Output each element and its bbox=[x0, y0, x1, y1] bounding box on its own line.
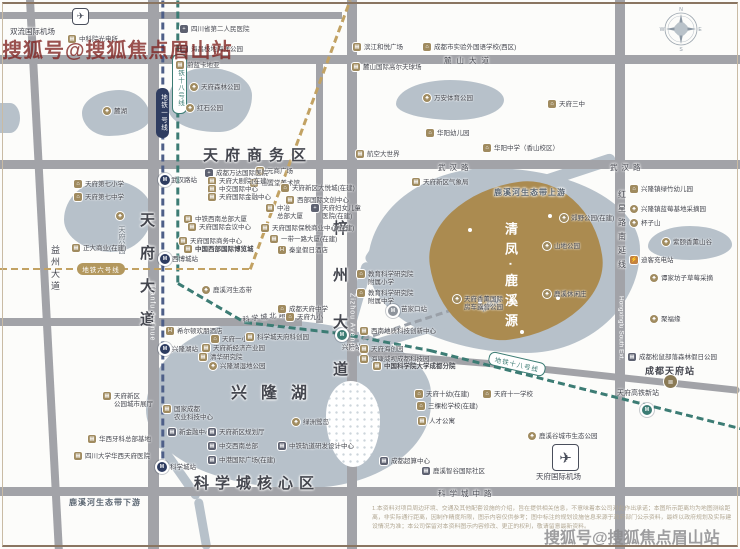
poi-bld: ▦正大商业(在建) bbox=[72, 245, 126, 253]
poi-bld: ▦中国西部国际博览城 bbox=[184, 246, 254, 254]
bld-icon: ▦ bbox=[202, 344, 210, 352]
poi-tree: ♣鹿溪谷城市生态公园 bbox=[528, 433, 598, 441]
school-icon: ⌂ bbox=[483, 390, 491, 398]
poi-hosp: +四川省第二人民医院 bbox=[180, 26, 250, 34]
property-dot bbox=[548, 214, 552, 218]
poi-label: 天府国际保税商业中心(在建) bbox=[272, 225, 354, 233]
district-title: 科学城核心区 bbox=[194, 472, 320, 493]
metro-station-icon: M bbox=[155, 460, 169, 474]
poi-label: 正大商业(在建) bbox=[83, 245, 126, 253]
bld-icon: ▦ bbox=[208, 193, 216, 201]
bld-icon: ▦ bbox=[360, 345, 368, 353]
map-label: 武汉路 bbox=[610, 162, 645, 173]
school-icon: ⌂ bbox=[426, 129, 434, 137]
map-label: 麓山大道 bbox=[444, 55, 494, 66]
school-icon: ⌂ bbox=[278, 305, 286, 313]
road bbox=[0, 487, 740, 496]
poi-label: 秦皇假日酒店 bbox=[289, 247, 328, 255]
watermark-bottom: 搜狐号@搜狐焦点眉山站 bbox=[544, 524, 720, 548]
poi-label: 紫颐香薰山谷 bbox=[673, 239, 712, 247]
school-icon: ⌂ bbox=[211, 335, 219, 343]
poi-label: 中国科学院大学成都分院 bbox=[384, 363, 456, 371]
poi-bld: ▦航空大世界 bbox=[356, 151, 400, 159]
park-area bbox=[0, 103, 20, 133]
poi-label: 天府新区规划厅 bbox=[219, 429, 265, 437]
poi-bld: ▦天府国际保税商业中心(在建) bbox=[261, 225, 354, 233]
poi-charge: ⚡迪客充电站 bbox=[630, 257, 674, 265]
poi-bld: ▦天府大剧院(在建) bbox=[208, 178, 269, 186]
tree-icon: ♣ bbox=[528, 432, 536, 440]
metro-line-line-6 bbox=[0, 268, 250, 271]
poi-label: 天府森林公园 bbox=[201, 84, 240, 92]
poi-school: ⌂兴隆镇绿竹幼儿园 bbox=[630, 186, 693, 194]
poi-label: 滨江和悦广场 bbox=[364, 44, 403, 52]
poi-label: 杯子山 bbox=[641, 220, 661, 228]
road bbox=[0, 12, 342, 19]
poi-tree: ♣郊野公园(在建) bbox=[560, 215, 614, 223]
poi-label: 中铁西南总部大厦 bbox=[195, 216, 247, 224]
map-label: 红星路南延线 bbox=[617, 190, 628, 274]
poi-school: ⌂三棵松学校(在建) bbox=[417, 403, 478, 411]
school-icon: ⌂ bbox=[483, 144, 491, 152]
poi-label: 中冶 总部大厦 bbox=[277, 205, 303, 220]
poi-label: 天府第七小学 bbox=[85, 181, 124, 189]
poi-label: 华阳中学（香山校区） bbox=[494, 145, 559, 153]
poi-tree: ♣兴隆湖湿地公园 bbox=[209, 363, 266, 371]
poi-label: 鹿溪智谷国际社区 bbox=[433, 468, 485, 476]
poi-label: 清华研究院 bbox=[210, 354, 243, 362]
location-map: N E S W 搜狐号@搜狐焦点眉山站 搜狐号@搜狐焦点眉山站 1.本资料对项目… bbox=[0, 0, 740, 549]
tree-icon: ♣ bbox=[662, 238, 670, 246]
bld2-icon: ▦ bbox=[380, 457, 388, 465]
train-icon: ≣ bbox=[664, 375, 677, 388]
school-icon: ⌂ bbox=[548, 100, 556, 108]
poi-label: 麓山国际高尔夫球场 bbox=[363, 64, 422, 72]
metro-station-label: 西博城站 bbox=[172, 253, 198, 263]
bld-icon: ▦ bbox=[360, 327, 368, 335]
bld-icon: ▦ bbox=[356, 150, 364, 158]
poi-bld2: ▦成都松鼠部落森林假日公园 bbox=[628, 354, 717, 362]
poi-label: 谭家坊子草莓采摘 bbox=[661, 275, 713, 283]
poi-tree: ♣兴隆镇蓝莓基地采摘园 bbox=[630, 206, 706, 214]
poi-label: 天府十幼(在建) bbox=[426, 391, 469, 399]
compass-w: W bbox=[660, 27, 665, 33]
poi-label: 天府国际金融中心 bbox=[219, 194, 271, 202]
poi-label: 华西牙科总部基地 bbox=[99, 436, 151, 444]
poi-label: 新金融中心 bbox=[179, 429, 212, 437]
poi-label: 教育科学研究院 附属中学 bbox=[368, 290, 414, 305]
metro-line-line-1 bbox=[162, 0, 165, 473]
poi-bld2: ▦成都超算中心 bbox=[380, 458, 430, 466]
metro-station-label: 科学城站 bbox=[170, 461, 196, 471]
poi-school: ⌂天府一小 bbox=[211, 336, 248, 344]
tree-icon: ♣ bbox=[650, 274, 658, 282]
metro-station-icon: M bbox=[158, 342, 172, 356]
bld-icon: ▦ bbox=[184, 215, 192, 223]
school-icon: ⌂ bbox=[357, 289, 365, 297]
poi-hosp: +天府妇女儿童 医院(在建) bbox=[311, 205, 361, 220]
bld-icon: ▦ bbox=[373, 362, 381, 370]
metro-station-label: 兴隆湖站 bbox=[172, 343, 198, 353]
poi-label: 国家成都 农业科技中心 bbox=[174, 406, 213, 421]
metro-line-badge: 地铁六号线 bbox=[77, 263, 125, 275]
poi-bld: ▦麓山国际高尔夫球场 bbox=[352, 64, 422, 72]
bld2-icon: ▦ bbox=[278, 442, 286, 450]
bld-icon: ▦ bbox=[199, 353, 207, 361]
map-label: 鹿溪河生态带下游 bbox=[69, 497, 141, 508]
bld-icon: ▦ bbox=[208, 185, 216, 193]
poi-label: 西部国际文创中心 bbox=[297, 197, 349, 205]
bld-icon: ▦ bbox=[179, 237, 187, 245]
district-title: 兴隆湖 bbox=[231, 379, 321, 403]
poi-bld: ▦中国科学院大学成都分院 bbox=[373, 363, 456, 371]
poi-bld: ▦天府国际金融中心 bbox=[208, 194, 271, 202]
poi-label: 红石公园 bbox=[197, 105, 223, 113]
poi-label: 天府新经济产业园 bbox=[213, 345, 265, 353]
poi-label: 成都松鼠部落森林假日公园 bbox=[639, 354, 717, 362]
district-title: 天府商务区 bbox=[203, 144, 313, 165]
poi-tree: ♣麓湖 bbox=[103, 108, 127, 116]
poi-school: ⌂华阳幼儿园 bbox=[426, 130, 470, 138]
school-icon: ⌂ bbox=[357, 270, 365, 278]
poi-label: 成都超算中心 bbox=[391, 458, 430, 466]
hotel-icon: H bbox=[278, 246, 286, 254]
airport-icon: ✈ bbox=[552, 444, 579, 471]
poi-tree: ♣绿洲鹭岛 bbox=[292, 419, 329, 427]
bld2-icon: ▦ bbox=[168, 428, 176, 436]
poi-label: 天府三中 bbox=[559, 101, 585, 109]
bld-icon: ▦ bbox=[74, 452, 82, 460]
map-label: 梓州大道 bbox=[329, 220, 350, 408]
poi-tree: ♣天府森林公园 bbox=[190, 84, 240, 92]
poi-tree: ♣红石公园 bbox=[186, 105, 223, 113]
bld-icon: ▦ bbox=[103, 392, 111, 400]
poi-label: 成都天府中学 bbox=[289, 306, 328, 314]
poi-school: ⌂天府十幼(在建) bbox=[415, 391, 469, 399]
bld-icon: ▦ bbox=[188, 223, 196, 231]
poi-label: 成都万达国际医院 bbox=[216, 170, 268, 178]
bld-icon: ▦ bbox=[163, 405, 171, 413]
poi-label: 鹿溪休闲庄 bbox=[554, 291, 587, 299]
poi-label: 三棵松学校(在建) bbox=[428, 403, 478, 411]
hosp-icon: + bbox=[311, 204, 319, 212]
compass-e: E bbox=[698, 27, 702, 33]
poi-bld: ▦蔚蓝卡地亚 bbox=[176, 62, 220, 70]
poi-bld: ▦中交国际中心 bbox=[208, 186, 258, 194]
metro-station-icon: M bbox=[640, 403, 654, 417]
metro-station-icon: M bbox=[158, 173, 172, 187]
poi-label: 人才公寓 bbox=[429, 418, 455, 426]
poi-tree: ♣鹿溪休闲庄 bbox=[543, 291, 587, 299]
bld-icon: ▦ bbox=[270, 235, 278, 243]
property-name: 清凤·鹿溪源 bbox=[501, 222, 520, 333]
metro-station-icon: M bbox=[158, 252, 172, 266]
poi-school: ⌂华阳中学（香山校区） bbox=[483, 145, 559, 153]
road bbox=[615, 0, 625, 549]
bld-icon: ▦ bbox=[261, 224, 269, 232]
poi-label: 万安体育公园 bbox=[434, 95, 473, 103]
poi-bld: ▦一带一路大厦(在建) bbox=[270, 236, 337, 244]
poi-bld: ▦科学城天府科创园 bbox=[246, 334, 309, 342]
tree-icon: ♣ bbox=[560, 214, 568, 222]
poi-school: ⌂天府第七小学 bbox=[74, 181, 124, 189]
poi-school: ⌂天府九小 bbox=[286, 314, 323, 322]
poi-label: 一带一路大厦(在建) bbox=[281, 236, 337, 244]
bld-icon: ▦ bbox=[266, 204, 274, 212]
tree-icon: ♣ bbox=[630, 219, 638, 227]
poi-label: 航空大世界 bbox=[367, 151, 400, 159]
poi-bld2: ▦中铁轨道研发设计中心 bbox=[278, 443, 354, 451]
bld-icon: ▦ bbox=[72, 244, 80, 252]
poi-bld: ▦中冶 总部大厦 bbox=[266, 205, 303, 220]
map-label: 天府国际机场 bbox=[536, 471, 581, 482]
poi-label: 鹿溪谷城市生态公园 bbox=[539, 433, 598, 441]
poi-label: 教育科学研究院 附属小学 bbox=[368, 271, 414, 286]
poi-label: 兴隆湖湿地公园 bbox=[220, 363, 266, 371]
school-icon: ⌂ bbox=[281, 184, 289, 192]
poi-label: 科学城天府科创园 bbox=[257, 334, 309, 342]
poi-bld: ▦天府国际会议中心 bbox=[188, 224, 251, 232]
property-dot bbox=[520, 330, 524, 334]
bld-icon: ▦ bbox=[412, 178, 420, 186]
school-icon: ⌂ bbox=[286, 313, 294, 321]
poi-bld2: ▦中交西南总部 bbox=[208, 443, 258, 451]
map-label: 武汉路 bbox=[438, 162, 473, 173]
bld-icon: ▦ bbox=[286, 196, 294, 204]
tree-icon: ♣ bbox=[543, 242, 551, 250]
poi-label: 兴隆镇蓝莓基地采摘园 bbox=[641, 206, 706, 214]
poi-school: ⌂天府三中 bbox=[548, 101, 585, 109]
poi-label: 四川省第二人民医院 bbox=[191, 26, 250, 34]
bld2-icon: ▦ bbox=[422, 467, 430, 475]
bld-icon: ▦ bbox=[208, 177, 216, 185]
metro-station-icon: M bbox=[386, 304, 400, 318]
poi-label: 天府新区气象局 bbox=[423, 179, 469, 187]
poi-label: 天府大剧院(在建) bbox=[219, 178, 269, 186]
tree-icon: ♣ bbox=[186, 104, 194, 112]
poi-tree: ♣谭家坊子草莓采摘 bbox=[650, 275, 713, 283]
poi-school: ⌂教育科学研究院 附属小学 bbox=[357, 271, 414, 286]
school-icon: ⌂ bbox=[423, 43, 431, 51]
school-icon: ⌂ bbox=[415, 390, 423, 398]
poi-label: 天府新区大悦城(在建) bbox=[292, 185, 355, 193]
poi-hotel: H秦皇假日酒店 bbox=[278, 247, 328, 255]
charge-icon: ⚡ bbox=[630, 256, 638, 264]
poi-tree: ♣鹿溪河生态带 bbox=[202, 287, 252, 295]
tree-icon: ♣ bbox=[190, 83, 198, 91]
tree-icon: ♣ bbox=[453, 295, 461, 303]
tree-icon: ♣ bbox=[116, 212, 124, 220]
metro-line-badge: 地铁一号线 bbox=[156, 88, 169, 138]
poi-bld2: ▦鹿溪智谷国际社区 bbox=[422, 468, 485, 476]
bld-icon: ▦ bbox=[184, 245, 192, 253]
poi-bld: ▦华西牙科总部基地 bbox=[88, 436, 151, 444]
poi-bld: ▦滨江和悦广场 bbox=[353, 44, 403, 52]
poi-tree: ♣聚福缘 bbox=[650, 316, 681, 324]
compass-icon: N E S W bbox=[658, 4, 704, 54]
map-label: 益州大道 bbox=[49, 245, 62, 293]
map-label: Tianfu Avenue bbox=[149, 284, 156, 341]
poi-label: 天府妇女儿童 医院(在建) bbox=[322, 205, 361, 220]
poi-bld2: ▦天府新区规划厅 bbox=[208, 429, 265, 437]
metro-station-label: 武汉路站 bbox=[171, 174, 197, 184]
poi-label: 中铁轨道研发设计中心 bbox=[289, 443, 354, 451]
poi-school: ⌂天府新区大悦城(在建) bbox=[281, 185, 355, 193]
poi-label: 天府国际商务中心 bbox=[190, 238, 242, 246]
tree-icon: ♣ bbox=[202, 286, 210, 294]
poi-label: 华阳幼儿园 bbox=[437, 130, 470, 138]
bld2-icon: ▦ bbox=[208, 442, 216, 450]
tree-icon: ♣ bbox=[292, 418, 300, 426]
poi-bld2: ▦中港国际广场(在建) bbox=[208, 457, 275, 465]
poi-bld: ▦人才公寓 bbox=[418, 418, 455, 426]
poi-tree: ♣ bbox=[116, 213, 124, 220]
tree-icon: ♣ bbox=[423, 94, 431, 102]
poi-label: 成都市实验外国语学校(西区) bbox=[434, 44, 516, 52]
poi-bld: ▦清华研究院 bbox=[199, 354, 243, 362]
poi-label: 天府一小 bbox=[222, 336, 248, 344]
poi-label: 西南地质科技创新中心 bbox=[371, 328, 436, 336]
bld-icon: ▦ bbox=[88, 435, 96, 443]
tree-icon: ♣ bbox=[543, 290, 551, 298]
poi-label: 中港国际广场(在建) bbox=[219, 457, 275, 465]
bld-icon: ▦ bbox=[352, 63, 360, 71]
hotel-icon: H bbox=[166, 327, 174, 335]
poi-label: 元商广场 bbox=[267, 168, 293, 176]
map-label: Zizhou Avenue bbox=[349, 293, 356, 352]
waterway bbox=[194, 497, 212, 549]
poi-bld2: ▦新金融中心 bbox=[168, 429, 212, 437]
poi-label: 天府海创园 bbox=[371, 346, 404, 354]
poi-label: 中交西南总部 bbox=[219, 443, 258, 451]
poi-tree: ♣杯子山 bbox=[630, 220, 661, 228]
poi-bld: ▦四川大学华西天府医院 bbox=[74, 453, 150, 461]
poi-label: 蔚蓝卡地亚 bbox=[187, 62, 220, 70]
poi-school: ⌂天府十一学校 bbox=[483, 391, 533, 399]
bld2-icon: ▦ bbox=[208, 456, 216, 464]
tree-icon: ♣ bbox=[630, 205, 638, 213]
tree-icon: ♣ bbox=[209, 362, 217, 370]
poi-label: 天府九小 bbox=[297, 314, 323, 322]
map-label: 天府高铁新站 bbox=[617, 388, 659, 398]
poi-label: 天府第七中学 bbox=[85, 194, 124, 202]
poi-tree: ♣天府香薰国际 房车露营公园 bbox=[453, 296, 503, 311]
school-icon: ⌂ bbox=[417, 402, 425, 410]
airport-icon: ✈ bbox=[72, 8, 89, 25]
bld-icon: ▦ bbox=[353, 43, 361, 51]
poi-school: ⌂天府第七中学 bbox=[74, 194, 124, 202]
poi-school: ⌂教育科学研究院 附属中学 bbox=[357, 290, 414, 305]
poi-label: 四川大学华西天府医院 bbox=[85, 453, 150, 461]
school-icon: ⌂ bbox=[630, 185, 638, 193]
poi-school: ⌂成都天府中学 bbox=[278, 306, 328, 314]
poi-bld: ▦天府海创园 bbox=[360, 346, 404, 354]
poi-school: ⌂成都市实验外国语学校(西区) bbox=[423, 44, 516, 52]
hosp-icon: + bbox=[180, 25, 188, 33]
poi-label: 迪客充电站 bbox=[641, 257, 674, 265]
property-dot bbox=[468, 228, 472, 232]
map-label: Hongxinglu South Ext. bbox=[618, 296, 625, 360]
poi-bld: ▦天府新经济产业园 bbox=[202, 345, 265, 353]
poi-label: 天府新区 公园城市展厅 bbox=[114, 393, 153, 408]
poi-label: 兴隆镇绿竹幼儿园 bbox=[641, 186, 693, 194]
poi-bld: ▦天府新区 公园城市展厅 bbox=[103, 393, 153, 408]
bld-icon: ▦ bbox=[418, 417, 426, 425]
poi-label: 天府十一学校 bbox=[494, 391, 533, 399]
poi-bld: ▦国家成都 农业科技中心 bbox=[163, 406, 213, 421]
poi-label: 天府国际会议中心 bbox=[199, 224, 251, 232]
poi-label: 中国西部国际博览城 bbox=[195, 246, 254, 254]
bld2-icon: ▦ bbox=[628, 353, 636, 361]
compass-n: N bbox=[679, 7, 683, 13]
map-label: 鹿溪河生态带上游 bbox=[494, 187, 566, 198]
poi-tree: ♣山地公园 bbox=[543, 243, 580, 251]
school-icon: ⌂ bbox=[74, 180, 82, 188]
poi-bld: ▦天府新区气象局 bbox=[412, 179, 469, 187]
poi-label: 麓湖 bbox=[114, 108, 127, 116]
poi-label: 山地公园 bbox=[554, 243, 580, 251]
poi-label: 鹿溪河生态带 bbox=[213, 287, 252, 295]
tree-icon: ♣ bbox=[103, 107, 111, 115]
tree-icon: ♣ bbox=[650, 315, 658, 323]
bld-icon: ▦ bbox=[246, 333, 254, 341]
bld2-icon: ▦ bbox=[208, 428, 216, 436]
bld-icon: ▦ bbox=[360, 355, 368, 363]
poi-label: 聚福缘 bbox=[661, 316, 681, 324]
hosp-icon: + bbox=[205, 169, 213, 177]
school-icon: ⌂ bbox=[74, 193, 82, 201]
poi-tree: ♣紫颐香薰山谷 bbox=[662, 239, 712, 247]
poi-train: ≣ bbox=[664, 376, 677, 388]
poi-label: 绿洲鹭岛 bbox=[303, 419, 329, 427]
map-label: 科学城中路 bbox=[438, 488, 496, 499]
compass-s: S bbox=[679, 47, 683, 53]
poi-bld: ▦西南地质科技创新中心 bbox=[360, 328, 436, 336]
poi-label: 中交国际中心 bbox=[219, 186, 258, 194]
poi-label: 天府香薰国际 房车露营公园 bbox=[464, 296, 503, 311]
poi-tree: ♣万安体育公园 bbox=[423, 95, 473, 103]
watermark-top: 搜狐号@搜狐焦点眉山站 bbox=[2, 34, 233, 63]
poi-label: 郊野公园(在建) bbox=[571, 215, 614, 223]
